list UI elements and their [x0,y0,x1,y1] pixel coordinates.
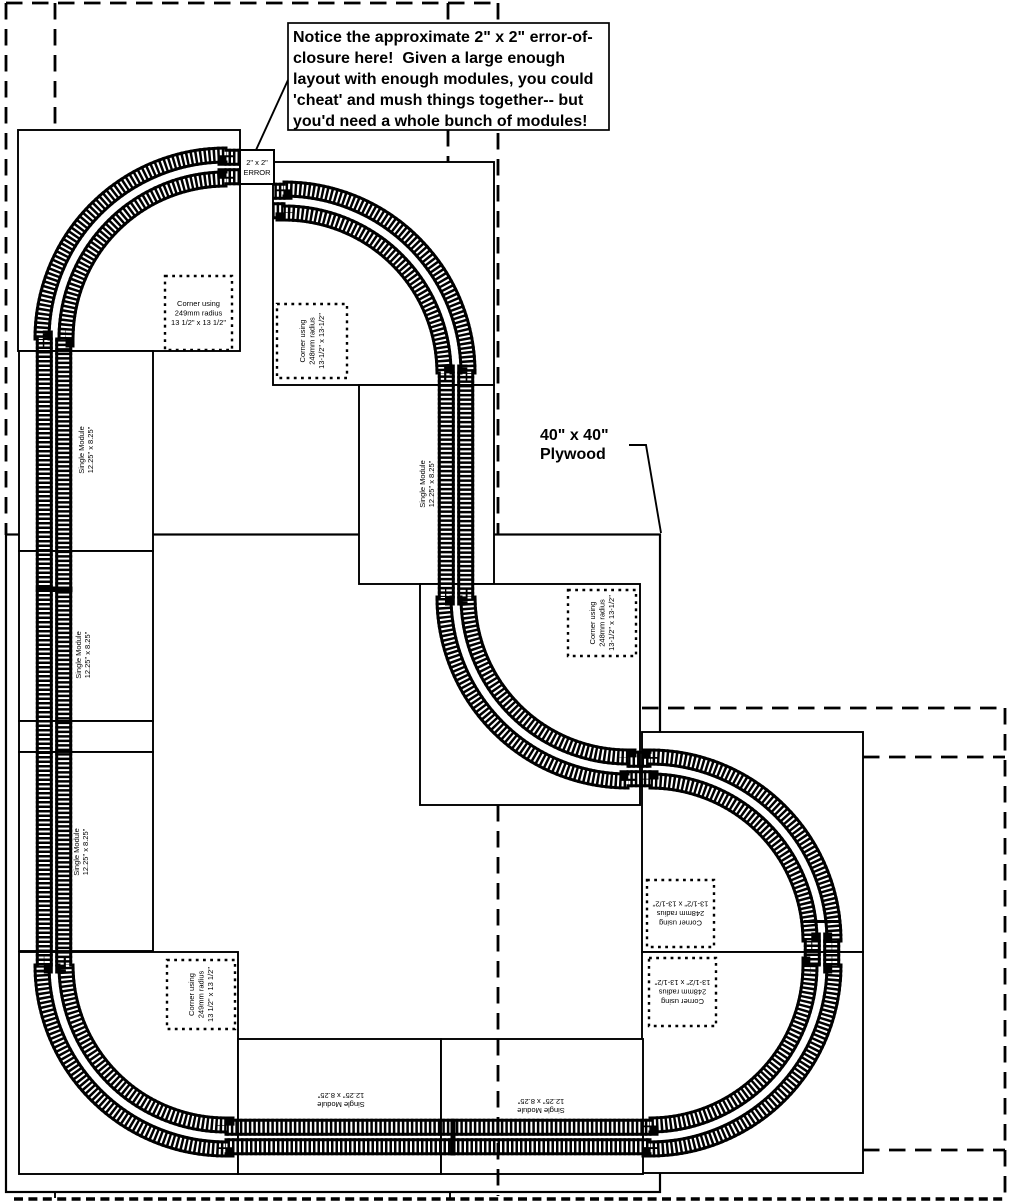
svg-text:Notice the approximate 2" x 2": Notice the approximate 2" x 2" error-of- [293,29,593,46]
svg-text:Single Module: Single Module [317,1100,365,1109]
svg-text:40" x 40": 40" x 40" [540,427,609,444]
svg-text:Single Module: Single Module [74,631,83,679]
svg-text:12.25" x 8.25": 12.25" x 8.25" [317,1091,364,1100]
svg-text:12.25" x 8.25": 12.25" x 8.25" [83,631,92,678]
svg-text:249mm radius: 249mm radius [175,309,223,318]
svg-text:248mm radius: 248mm radius [656,909,704,918]
svg-text:Corner using: Corner using [659,919,702,928]
svg-text:13-1/2" x 13-1/2": 13-1/2" x 13-1/2" [652,900,708,909]
svg-text:13 1/2" x 13 1/2": 13 1/2" x 13 1/2" [171,318,226,327]
svg-text:Single Module: Single Module [418,460,427,508]
svg-text:2" x 2": 2" x 2" [246,158,268,167]
svg-text:12.25" x 8.25": 12.25" x 8.25" [427,460,436,507]
svg-text:Corner using: Corner using [661,997,704,1006]
svg-text:ERROR: ERROR [243,168,271,177]
svg-text:13-1/2" x 13-1/2": 13-1/2" x 13-1/2" [317,313,326,369]
svg-text:you'd need a whole bunch of mo: you'd need a whole bunch of modules! [293,113,587,130]
svg-text:13 1/2" x 13 1/2": 13 1/2" x 13 1/2" [206,967,215,1022]
svg-text:248mm radius: 248mm radius [658,988,706,997]
svg-text:Single Module: Single Module [517,1106,565,1115]
svg-text:12.25" x 8.25": 12.25" x 8.25" [517,1097,564,1106]
svg-text:Corner using: Corner using [177,299,220,308]
svg-text:13-1/2" x 13-1/2": 13-1/2" x 13-1/2" [607,595,616,651]
svg-text:layout with enough modules, yo: layout with enough modules, you could [293,71,593,88]
svg-text:Corner using: Corner using [298,320,307,363]
svg-text:12.25" x 8.25": 12.25" x 8.25" [86,426,95,473]
svg-text:Plywood: Plywood [540,446,606,463]
svg-text:Single Module: Single Module [77,426,86,474]
svg-text:248mm radius: 248mm radius [308,317,317,365]
svg-text:13-1/2" x 13-1/2": 13-1/2" x 13-1/2" [654,978,710,987]
svg-text:248mm radius: 248mm radius [598,599,607,647]
svg-text:12.25" x 8.25": 12.25" x 8.25" [81,828,90,875]
svg-text:Corner using: Corner using [588,602,597,645]
svg-text:'cheat' and mush things togeth: 'cheat' and mush things together-- but [293,92,584,109]
svg-text:249mm radius: 249mm radius [197,970,206,1018]
svg-text:closure here! Given a large e: closure here! Given a large enough [293,50,565,67]
svg-text:Single Module: Single Module [72,828,81,876]
svg-text:Corner using: Corner using [187,973,196,1016]
